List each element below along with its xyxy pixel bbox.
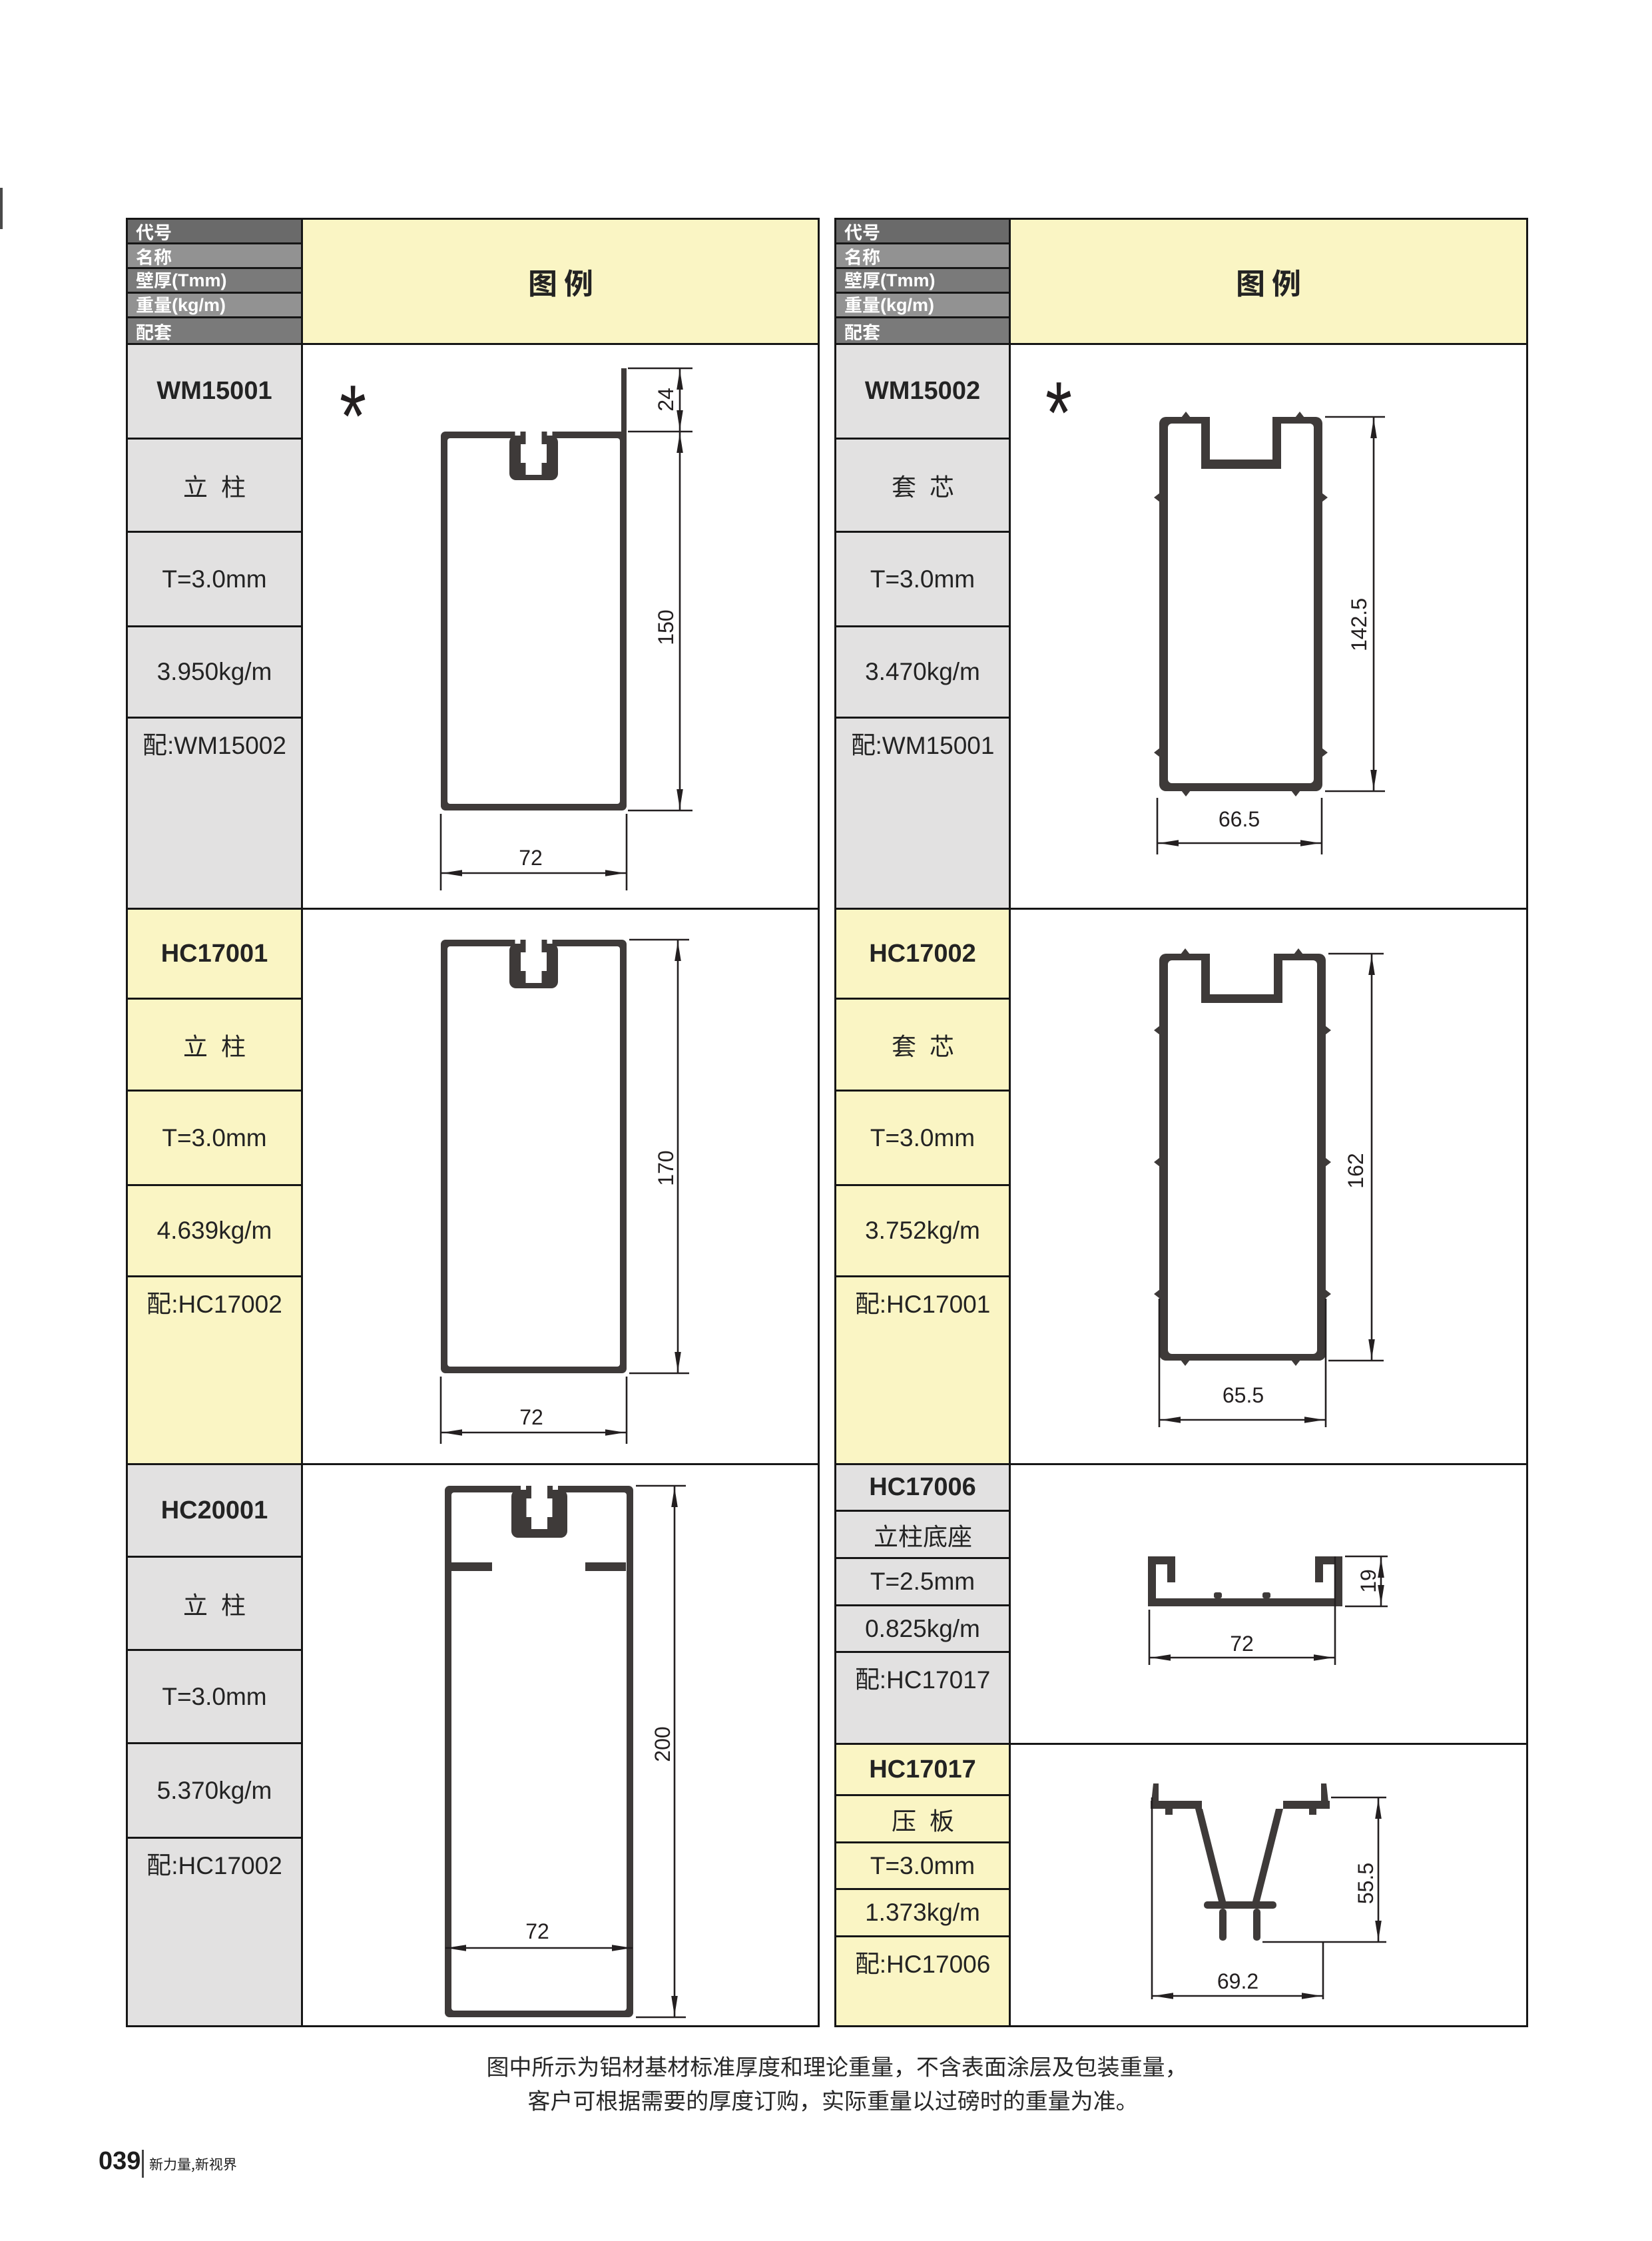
svg-text:19: 19 (1356, 1569, 1380, 1593)
svg-text:65.5: 65.5 (1223, 1383, 1264, 1407)
svg-text:170: 170 (654, 1150, 678, 1185)
svg-text:72: 72 (519, 846, 543, 870)
svg-text:24: 24 (654, 388, 678, 412)
svg-text:72: 72 (1230, 1632, 1254, 1656)
svg-text:142.5: 142.5 (1347, 598, 1371, 651)
svg-text:55.5: 55.5 (1354, 1863, 1378, 1904)
svg-text:150: 150 (654, 609, 678, 645)
svg-text:72: 72 (519, 1405, 543, 1429)
svg-text:200: 200 (651, 1726, 675, 1761)
svg-text:*: * (1045, 364, 1072, 462)
svg-text:69.2: 69.2 (1217, 1969, 1258, 1993)
svg-text:66.5: 66.5 (1219, 807, 1260, 831)
svg-text:72: 72 (525, 1919, 549, 1943)
svg-text:*: * (340, 368, 366, 466)
svg-text:162: 162 (1344, 1153, 1368, 1188)
